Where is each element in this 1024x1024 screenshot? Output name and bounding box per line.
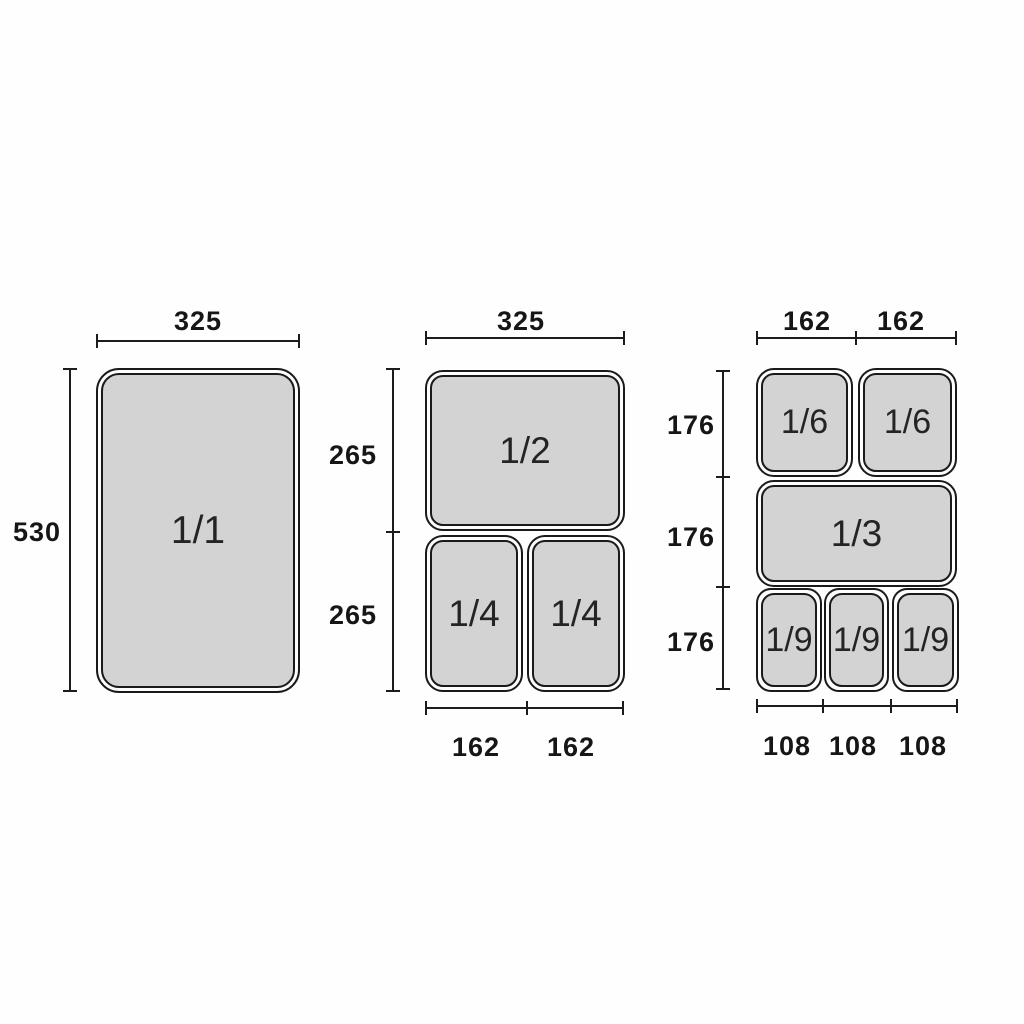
height-dimension-line-1-1 (69, 368, 71, 692)
tick (63, 368, 77, 370)
pan-1-2: 1/2 (425, 370, 625, 531)
tick (386, 690, 400, 692)
tick (716, 688, 730, 690)
dim-label-width-1-1: 325 (166, 305, 230, 337)
tick (756, 699, 758, 713)
tick (716, 476, 730, 478)
dim-label-height-1-3: 176 (659, 521, 723, 553)
width-dimension-line-middle (425, 337, 625, 339)
height-dimension-line-right (722, 370, 724, 690)
tick (756, 331, 758, 345)
dim-label-height-1-2: 265 (321, 439, 385, 471)
pan-1-6-right: 1/6 (858, 368, 957, 477)
tick (526, 701, 528, 715)
dim-label-height-1-1: 530 (5, 516, 69, 548)
tick (955, 331, 957, 345)
pan-1-1: 1/1 (96, 368, 300, 693)
tick (386, 531, 400, 533)
pan-1-9-label: 1/9 (761, 593, 817, 687)
tick (855, 331, 857, 345)
tick (425, 331, 427, 345)
dim-label-width-1-9-middle: 108 (821, 730, 885, 762)
pan-1-6-label: 1/6 (761, 373, 848, 472)
pan-1-9-right: 1/9 (892, 588, 959, 692)
tick (956, 699, 958, 713)
tick (96, 334, 98, 348)
dim-label-height-1-4: 265 (321, 599, 385, 631)
pan-1-6-left: 1/6 (756, 368, 853, 477)
tick (622, 701, 624, 715)
dim-label-width-1-9-right: 108 (891, 730, 955, 762)
bottom-dimension-line-middle (425, 707, 624, 709)
tick (623, 331, 625, 345)
tick (716, 370, 730, 372)
dim-label-width-1-9-left: 108 (755, 730, 819, 762)
width-dimension-line-right (756, 337, 957, 339)
pan-1-3-label: 1/3 (761, 485, 952, 582)
dim-label-width-1-4-right: 162 (539, 731, 603, 763)
tick (425, 701, 427, 715)
dim-label-height-1-6: 176 (659, 409, 723, 441)
pan-1-6-label: 1/6 (863, 373, 952, 472)
width-dimension-line-1-1 (96, 340, 300, 342)
pan-1-4-label: 1/4 (430, 540, 518, 687)
pan-1-9-label: 1/9 (897, 593, 954, 687)
tick (386, 368, 400, 370)
tick (822, 699, 824, 713)
gastronorm-size-diagram: 325 530 1/1 325 265 265 1/2 1/4 1/4 162 … (0, 0, 1024, 1024)
pan-1-9-left: 1/9 (756, 588, 822, 692)
bottom-dimension-line-right (756, 705, 958, 707)
dim-label-width-1-6-right: 162 (869, 305, 933, 337)
pan-1-2-label: 1/2 (430, 375, 620, 526)
tick (890, 699, 892, 713)
pan-1-3: 1/3 (756, 480, 957, 587)
height-dimension-line-middle (392, 368, 394, 692)
pan-1-1-label: 1/1 (101, 373, 295, 688)
tick (298, 334, 300, 348)
pan-1-4-right: 1/4 (527, 535, 625, 692)
tick (716, 586, 730, 588)
pan-1-4-label: 1/4 (532, 540, 620, 687)
pan-1-9-label: 1/9 (829, 593, 884, 687)
pan-1-4-left: 1/4 (425, 535, 523, 692)
dim-label-width-1-4-left: 162 (444, 731, 508, 763)
tick (63, 690, 77, 692)
dim-label-width-middle: 325 (489, 305, 553, 337)
dim-label-width-1-6-left: 162 (775, 305, 839, 337)
pan-1-9-middle: 1/9 (824, 588, 889, 692)
dim-label-height-1-9: 176 (659, 626, 723, 658)
